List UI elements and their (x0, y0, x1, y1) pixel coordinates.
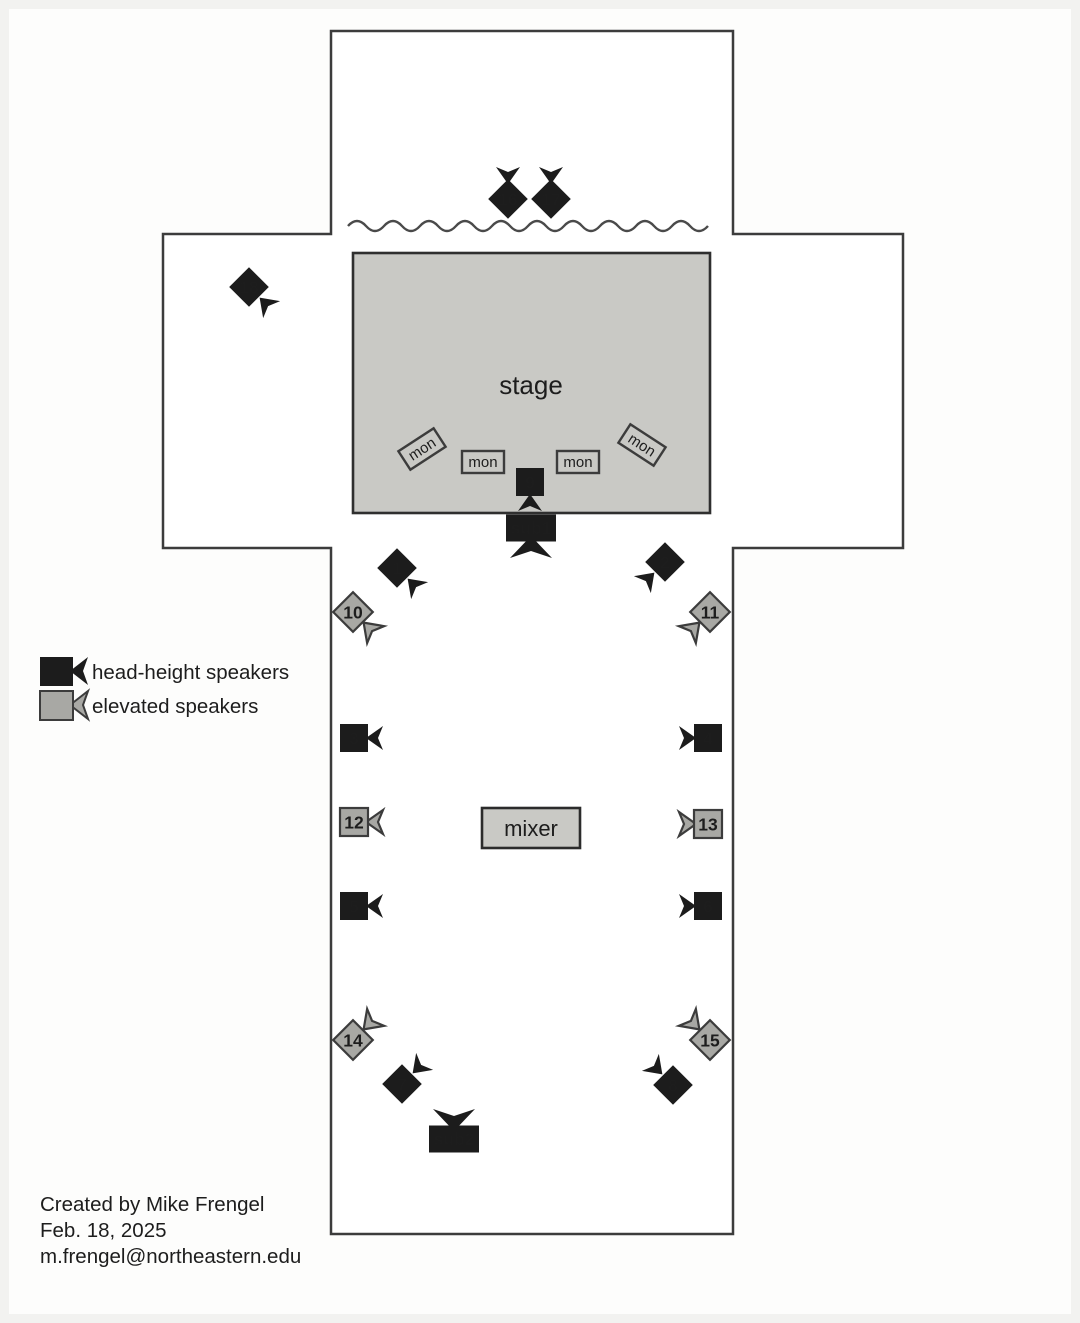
speaker-number: 13 (698, 815, 718, 835)
sub-label: sub2 (434, 1129, 475, 1149)
elevated-speaker-icon (40, 691, 88, 720)
speaker-number: 5 (349, 897, 359, 917)
speaker-number: 2 (660, 553, 670, 573)
speaker-number: 10 (343, 603, 363, 623)
speaker-number: 3 (349, 729, 359, 749)
speaker-number: 14 (343, 1031, 363, 1051)
legend: head-height speakers elevated speakers (40, 657, 289, 720)
speaker-number: 8 (668, 1076, 678, 1096)
monitor-label: mon (468, 454, 497, 471)
speaker-number: 11 (701, 603, 720, 623)
speaker-number: 9 (525, 473, 535, 493)
speaker-number: 15 (700, 1031, 720, 1051)
speaker-number: 17 (541, 190, 560, 210)
room-outline (163, 31, 903, 1234)
speaker-layout-diagram: stage monmonmonmon1234567891011121314151… (0, 0, 1080, 1323)
speaker-number: 7 (397, 1075, 407, 1095)
stage-label: stage (499, 370, 563, 400)
monitor-label: mon (563, 454, 592, 471)
legend-elevated-label: elevated speakers (92, 695, 258, 718)
speaker-number: 12 (344, 813, 364, 833)
speaker-number: 6 (703, 897, 713, 917)
speaker-number: 16 (498, 190, 518, 210)
footer-credit: Created by Mike Frengel Feb. 18, 2025 m.… (40, 1193, 301, 1268)
footer-line-1: Created by Mike Frengel (40, 1193, 264, 1216)
footer-line-2: Feb. 18, 2025 (40, 1219, 167, 1242)
head-height-speaker-icon (40, 657, 88, 686)
speaker-number: 4 (703, 729, 713, 749)
monitor-wedge-3: mon (557, 451, 599, 473)
legend-head-height-label: head-height speakers (92, 661, 289, 684)
mixer-label: mixer (504, 816, 558, 841)
sub-label: sub1 (511, 518, 552, 538)
speaker-number: 1 (392, 559, 402, 579)
monitor-wedge-2: mon (462, 451, 504, 473)
speaker-number: 18 (239, 278, 259, 298)
footer-line-3: m.frengel@northeastern.edu (40, 1245, 301, 1268)
